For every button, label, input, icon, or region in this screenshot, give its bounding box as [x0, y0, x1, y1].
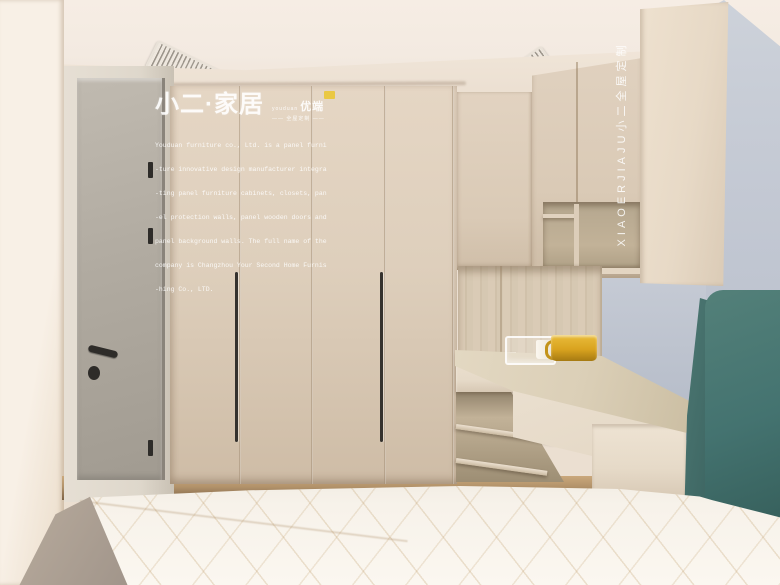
description-line: -el protection walls, panel wooden doors…: [155, 214, 425, 222]
vertical-brand-watermark: XIAOERJIAJU小二全屋定制: [613, 34, 631, 254]
brand-cn: 优端: [300, 98, 324, 114]
left-wall-corner: [0, 0, 64, 585]
brand-watermark: 小二·家居 youduan 优端 —— 全屋定制 —— Youduan furn…: [155, 92, 425, 310]
niche-panel-seam: [500, 266, 502, 364]
amber-glass: [551, 335, 597, 361]
brand-tagline: —— 全屋定制 ——: [272, 115, 325, 122]
cubby-divider: [574, 204, 579, 272]
brand-sub-block: youduan 优端 —— 全屋定制 ——: [272, 98, 325, 122]
description-line: -ture innovative design manufacturer int…: [155, 166, 425, 174]
description-line: Youduan furniture co., Ltd. is a panel f…: [155, 142, 425, 150]
wardrobe-door-seam: [452, 86, 454, 484]
brand-title: 小二·家居: [155, 92, 264, 118]
brand-description: Youduan furniture co., Ltd. is a panel f…: [155, 126, 425, 310]
upper-cabinet-over-niche: [457, 92, 533, 270]
description-line: -ting panel furniture cabinets, closets,…: [155, 190, 425, 198]
bedroom-photo: 小二·家居 youduan 优端 —— 全屋定制 —— Youduan furn…: [0, 0, 780, 585]
cabinet-door-seam: [576, 62, 578, 212]
description-line: -hing Co., LTD.: [155, 286, 425, 294]
cabinet-side-panel: [640, 2, 732, 286]
door-hinge: [148, 440, 153, 456]
brand-latin: youduan: [272, 106, 298, 112]
door-lock-knob: [88, 366, 100, 380]
desk-end-panel: [592, 424, 686, 498]
teal-headboard: [705, 290, 780, 530]
description-line: panel background walls. The full name of…: [155, 238, 425, 246]
door-hinge: [148, 228, 153, 244]
cubby-shelf: [543, 214, 576, 218]
description-line: company is Changzhou Your Second Home Fu…: [155, 262, 425, 270]
gray-door: [77, 78, 165, 480]
door-hinge: [148, 162, 153, 178]
